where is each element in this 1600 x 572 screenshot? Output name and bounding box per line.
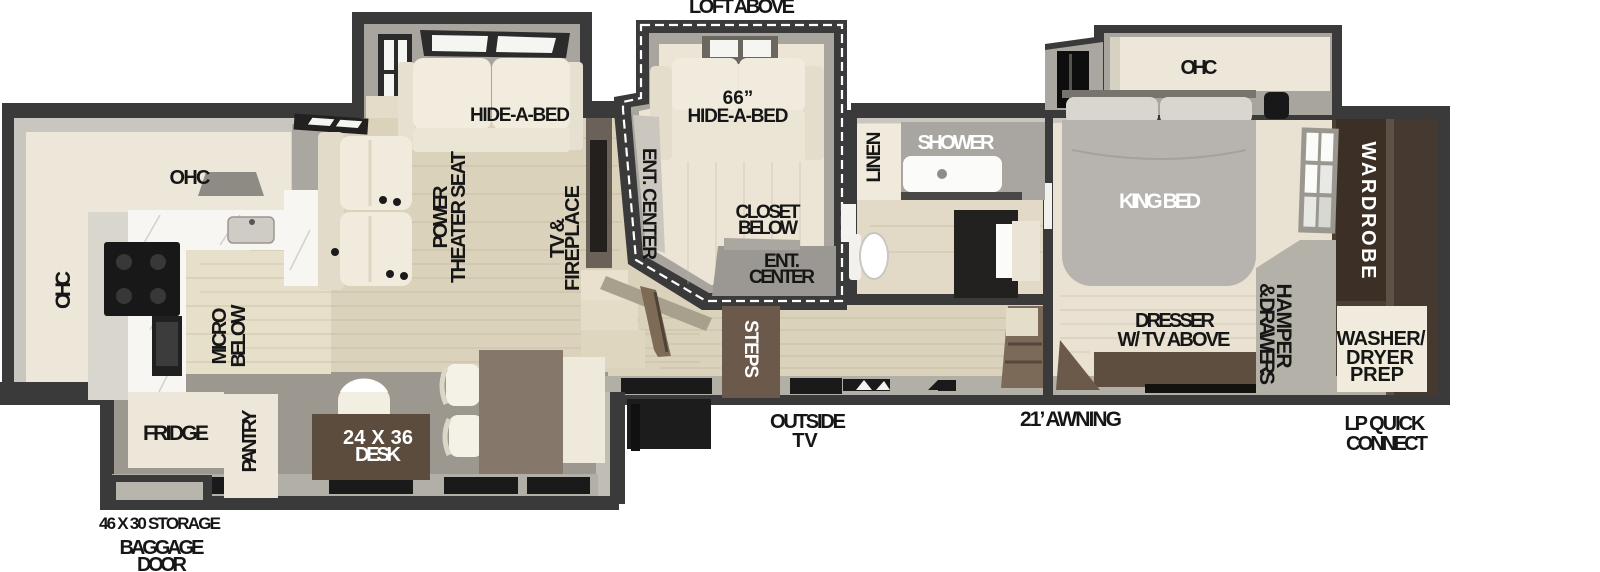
svg-text:THEATER SEAT: THEATER SEAT — [448, 151, 470, 283]
svg-text:& DRAWERS: & DRAWERS — [1255, 283, 1278, 385]
svg-text:HIDE-A-BED: HIDE-A-BED — [688, 106, 789, 127]
svg-text:TV: TV — [792, 430, 818, 452]
svg-text:LP QUICK: LP QUICK — [1345, 413, 1427, 435]
svg-text:BELOW: BELOW — [228, 304, 250, 367]
svg-text:46 X 30 STORAGE: 46 X 30 STORAGE — [99, 514, 221, 533]
svg-text:BELOW: BELOW — [738, 218, 798, 239]
svg-text:WARDROBE: WARDROBE — [1357, 142, 1379, 279]
svg-text:HIDE-A-BED: HIDE-A-BED — [470, 105, 570, 126]
svg-text:FIREPLACE: FIREPLACE — [562, 185, 584, 291]
svg-text:DOOR: DOOR — [137, 554, 188, 572]
svg-text:PREP: PREP — [1350, 364, 1404, 386]
svg-text:CONNECT: CONNECT — [1346, 433, 1428, 455]
svg-text:CENTER: CENTER — [749, 267, 815, 288]
svg-text:SHOWER: SHOWER — [918, 132, 996, 154]
svg-text:OHC: OHC — [1181, 57, 1218, 79]
svg-text:ENT. CENTER: ENT. CENTER — [638, 148, 659, 260]
svg-text:DESK: DESK — [355, 444, 402, 466]
svg-text:W/ TV ABOVE: W/ TV ABOVE — [1118, 329, 1231, 351]
svg-text:LOFT ABOVE: LOFT ABOVE — [689, 0, 795, 18]
svg-text:FRIDGE: FRIDGE — [143, 422, 209, 445]
svg-text:21’ AWNING: 21’ AWNING — [1020, 408, 1122, 431]
svg-text:KING BED: KING BED — [1119, 190, 1201, 213]
svg-text:OHC: OHC — [52, 271, 75, 309]
svg-text:LINEN: LINEN — [864, 132, 885, 183]
svg-text:OHC: OHC — [170, 167, 211, 189]
svg-text:STEPS: STEPS — [740, 320, 761, 378]
svg-text:PANTRY: PANTRY — [239, 409, 261, 473]
